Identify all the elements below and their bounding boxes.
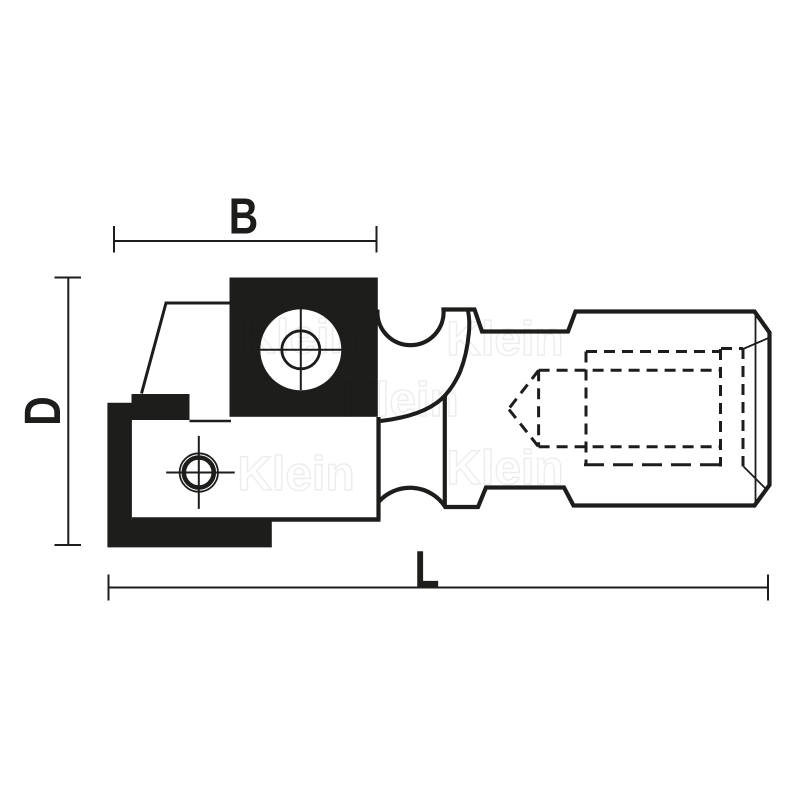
svg-text:D: D [13, 396, 70, 425]
svg-text:Klein: Klein [446, 313, 563, 366]
svg-text:Klein: Klein [237, 448, 354, 501]
svg-text:L: L [415, 540, 440, 597]
svg-text:Klein: Klein [446, 442, 563, 495]
svg-text:B: B [229, 187, 258, 244]
svg-text:Klein: Klein [341, 374, 458, 427]
svg-text:Klein: Klein [241, 311, 358, 364]
